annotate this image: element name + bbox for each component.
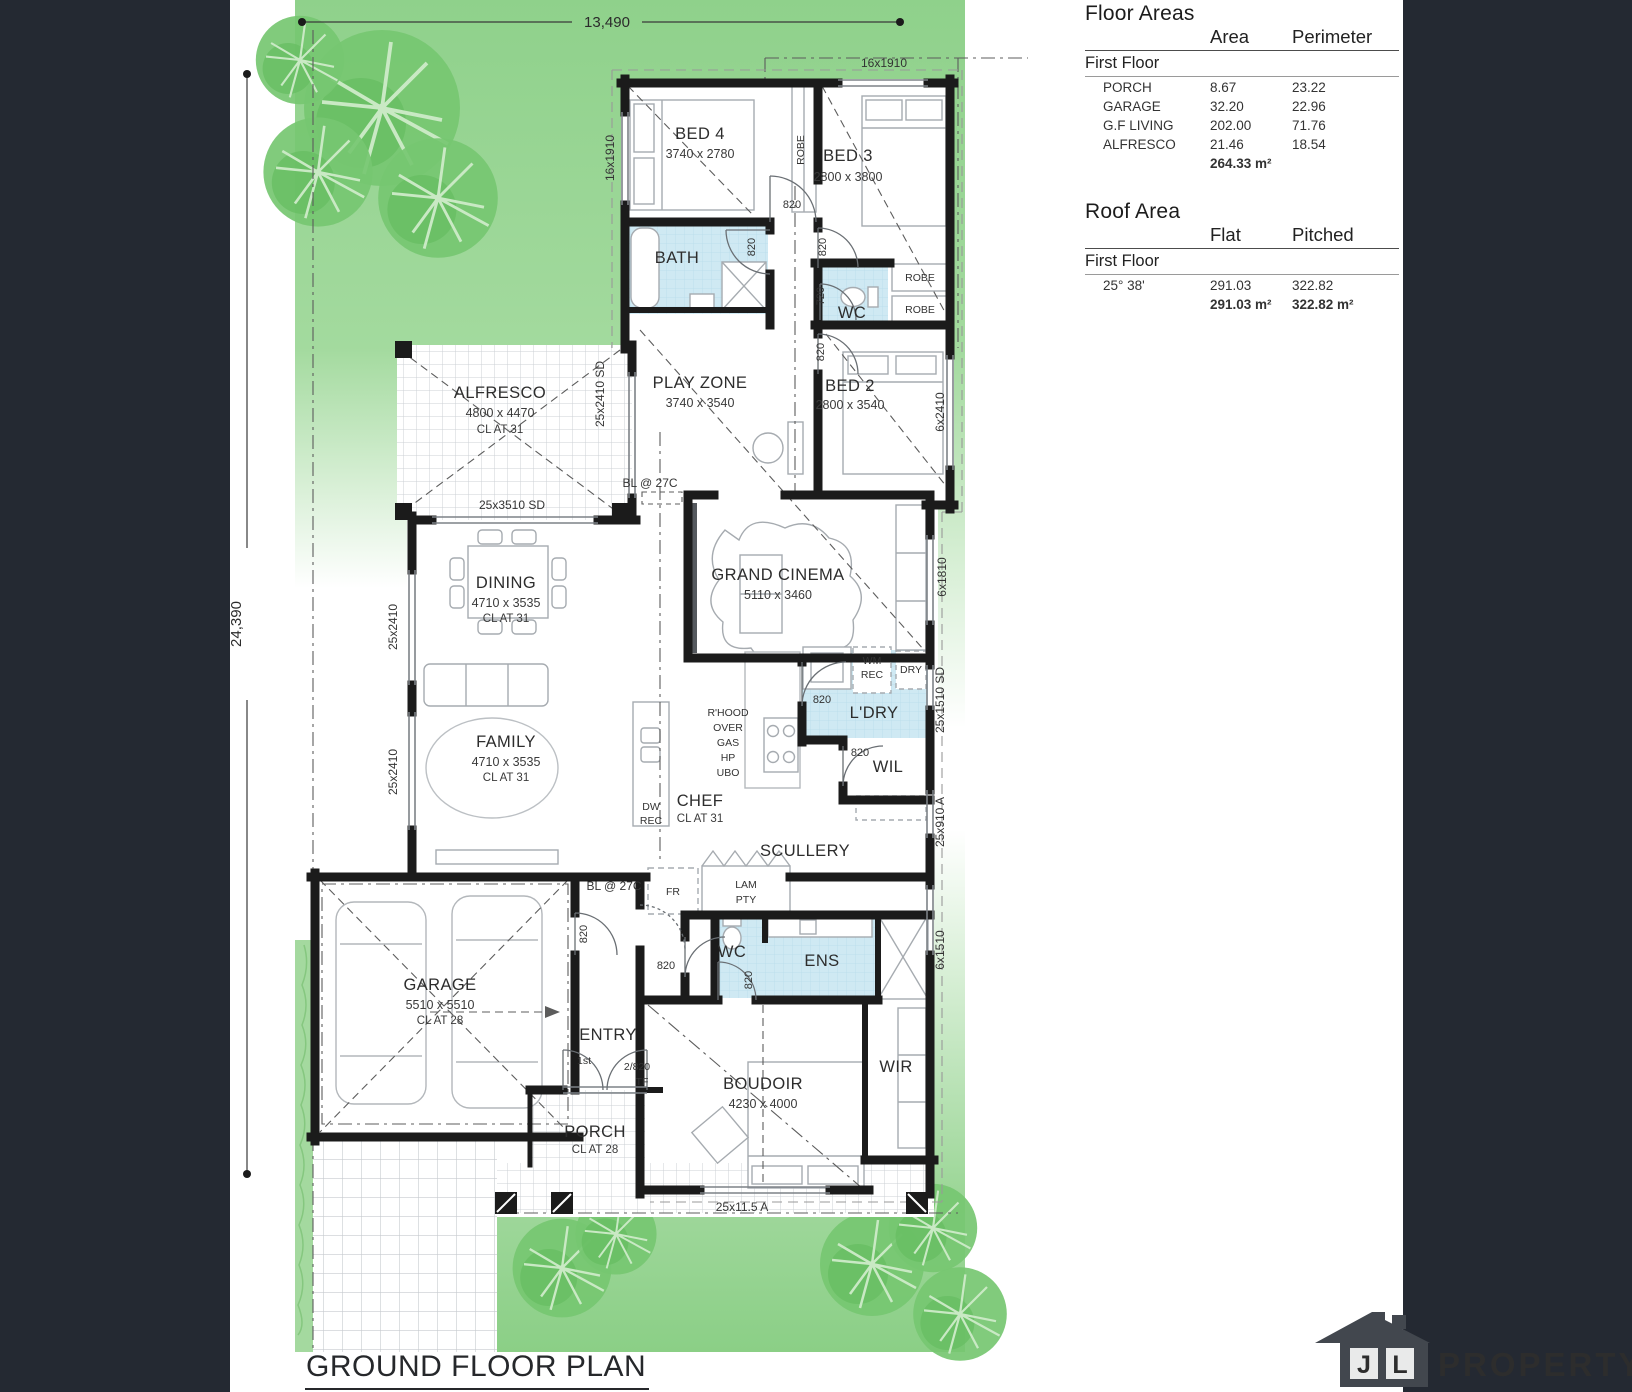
window-16x1910: 16x1910 xyxy=(603,135,617,181)
room-size-garage: 5510 x 5510 xyxy=(406,998,475,1012)
house-icon: J L xyxy=(1315,1312,1430,1387)
room-label-wc1: WC xyxy=(838,304,866,322)
door-820: 820 xyxy=(783,199,801,211)
window-6x1510: 6x1510 xyxy=(933,930,947,970)
ceiling-porch: CL AT 28 xyxy=(572,1144,618,1156)
page-title: GROUND FLOOR PLAN xyxy=(305,1350,649,1390)
right-dark-margin xyxy=(1403,0,1632,1392)
total-area: 264.33 m² xyxy=(1210,154,1292,173)
total-row: 291.03 m² 322.82 m² xyxy=(1085,295,1399,314)
room-label-garage: GARAGE xyxy=(403,976,476,994)
door-820: 820 xyxy=(815,343,827,361)
roof-area-header: Flat Pitched xyxy=(1085,224,1399,246)
door-720: 720 xyxy=(815,287,827,305)
room-size-play-zone: 3740 x 3540 xyxy=(666,396,735,410)
door-820: 820 xyxy=(851,747,869,759)
room-label-wc2: WC xyxy=(718,943,746,961)
window-25x115-a: 25x11.5 A xyxy=(716,1200,769,1214)
bulkhead-note: BL @ 27C xyxy=(622,476,677,490)
table-row: GARAGE 32.20 22.96 xyxy=(1085,97,1399,116)
dryer-label: DRY xyxy=(900,664,922,676)
window-25x2410: 25x2410 xyxy=(386,749,400,795)
roof-area-section: First Floor xyxy=(1085,250,1399,272)
table-row: G.F LIVING 202.00 71.76 xyxy=(1085,116,1399,135)
room-label-grand-cinema: GRAND CINEMA xyxy=(711,566,844,584)
divider xyxy=(1085,248,1399,249)
roof-pitch: 25° 38' xyxy=(1085,276,1210,295)
rhood-note: HP xyxy=(721,752,736,764)
roof-pitched-total: 322.82 m² xyxy=(1292,295,1399,314)
room-size-alfresco: 4800 x 4470 xyxy=(466,406,535,420)
wm-rec-label: WM xyxy=(863,655,882,667)
left-dark-margin xyxy=(0,0,230,1392)
window-25x910-a: 25x910 A xyxy=(933,797,947,847)
robe-label: ROBE xyxy=(795,135,807,165)
room-label-ens: ENS xyxy=(804,952,839,970)
room-label-bed4: BED 4 xyxy=(675,125,725,143)
door-820: 820 xyxy=(657,960,675,972)
door-820: 820 xyxy=(746,238,758,256)
lot-depth-dimension: 24,390 xyxy=(230,601,245,647)
area-tables: Floor Areas Area Perimeter First Floor P… xyxy=(1085,2,1399,314)
room-label-family: FAMILY xyxy=(476,733,536,751)
floor-areas-section: First Floor xyxy=(1085,52,1399,74)
wm-rec-label: REC xyxy=(861,669,884,681)
room-size-grand-cinema: 5110 x 3460 xyxy=(744,588,812,602)
ceiling-family: CL AT 31 xyxy=(483,772,529,784)
pantry-label: PTY xyxy=(736,894,756,906)
total-row: 264.33 m² xyxy=(1085,154,1399,173)
pantry-label: LAM xyxy=(735,879,757,891)
logo-letter-j: J xyxy=(1357,1351,1371,1379)
room-label-entry: ENTRY xyxy=(579,1026,637,1044)
room-label-bed2: BED 2 xyxy=(825,377,875,395)
col-pitched: Pitched xyxy=(1292,224,1399,246)
rhood-note: UBO xyxy=(717,767,740,779)
room-size-family: 4710 x 3535 xyxy=(472,755,541,769)
room-label-wil: WIL xyxy=(873,758,904,776)
lot-width-dimension: 13,490 xyxy=(584,14,630,31)
roof-area-table: Roof Area Flat Pitched First Floor 25° 3… xyxy=(1085,200,1399,314)
dw-rec-label: DW xyxy=(642,801,660,813)
window-16x1910: 16x1910 xyxy=(861,56,907,70)
room-label-laundry: L'DRY xyxy=(850,704,899,722)
door-note-1st: 1st xyxy=(577,1055,591,1067)
room-size-bed2: 2800 x 3540 xyxy=(816,398,885,412)
divider xyxy=(1085,50,1399,51)
bulkhead-note: BL @ 27C xyxy=(586,879,641,893)
room-size-boudoir: 4230 x 4000 xyxy=(729,1097,798,1111)
table-row: ALFRESCO 21.46 18.54 xyxy=(1085,135,1399,154)
window-6x1810: 6x1810 xyxy=(935,557,949,597)
floor-areas-heading: Floor Areas xyxy=(1085,2,1399,26)
ceiling-garage: CL AT 28 xyxy=(417,1015,463,1027)
rhood-note: GAS xyxy=(717,737,739,749)
fridge-label: FR xyxy=(666,886,680,898)
table-row: PORCH 8.67 23.22 xyxy=(1085,78,1399,97)
window-25x1510-sd: 25x1510 SD xyxy=(933,667,947,733)
ceiling-chef: CL AT 31 xyxy=(677,813,723,825)
divider xyxy=(1085,76,1399,77)
room-size-dining: 4710 x 3535 xyxy=(472,596,541,610)
table-row: 25° 38' 291.03 322.82 xyxy=(1085,276,1399,295)
window-25x2410-sd: 25x2410 SD xyxy=(593,361,607,427)
roof-area-heading: Roof Area xyxy=(1085,200,1399,224)
window-6x2410: 6x2410 xyxy=(933,392,947,432)
room-label-bath: BATH xyxy=(655,249,699,267)
floor-areas-header: Area Perimeter xyxy=(1085,26,1399,48)
col-perimeter: Perimeter xyxy=(1292,26,1399,48)
ceiling-alfresco: CL AT 31 xyxy=(477,424,523,436)
room-label-play-zone: PLAY ZONE xyxy=(653,374,748,392)
door-820: 820 xyxy=(817,238,829,256)
window-25x3510-sd: 25x3510 SD xyxy=(479,498,545,512)
door-820: 820 xyxy=(743,971,755,989)
logo-brand-text: PROPERTY xyxy=(1438,1346,1632,1383)
rhood-note: OVER xyxy=(713,722,743,734)
room-label-dining: DINING xyxy=(476,574,536,592)
room-label-chef: CHEF xyxy=(677,792,724,810)
divider xyxy=(1085,274,1399,275)
room-label-scullery: SCULLERY xyxy=(760,842,850,860)
room-label-porch: PORCH xyxy=(564,1123,626,1141)
room-label-wir: WIR xyxy=(879,1058,912,1076)
rhood-note: R'HOOD xyxy=(707,707,749,719)
door-note-tf: TF xyxy=(636,1076,649,1088)
driveway xyxy=(313,1137,497,1352)
robe-label: ROBE xyxy=(905,304,935,316)
logo-letter-l: L xyxy=(1392,1351,1407,1379)
col-area: Area xyxy=(1210,26,1292,48)
roof-flat-total: 291.03 m² xyxy=(1210,295,1292,314)
dw-rec-label: REC xyxy=(640,815,663,827)
jl-property-logo: J L PROPERTY xyxy=(1298,1290,1632,1390)
room-label-bed3: BED 3 xyxy=(823,147,873,165)
floor-plan-page: 13,490 24,390 BED 4 3740 x 2780 ROBE BED… xyxy=(0,0,1632,1392)
room-size-bed3: 2800 x 3800 xyxy=(814,170,883,184)
door-2-820: 2/820 xyxy=(624,1061,650,1073)
floor-areas-table: Floor Areas Area Perimeter First Floor P… xyxy=(1085,2,1399,173)
window-25x2410: 25x2410 xyxy=(386,604,400,650)
room-label-alfresco: ALFRESCO xyxy=(454,384,546,402)
col-flat: Flat xyxy=(1210,224,1292,246)
door-820: 820 xyxy=(813,694,831,706)
robe-label: ROBE xyxy=(905,272,935,284)
ceiling-dining: CL AT 31 xyxy=(483,613,529,625)
door-820: 820 xyxy=(578,925,590,943)
room-label-boudoir: BOUDOIR xyxy=(723,1075,803,1093)
room-size-bed4: 3740 x 2780 xyxy=(666,147,735,161)
